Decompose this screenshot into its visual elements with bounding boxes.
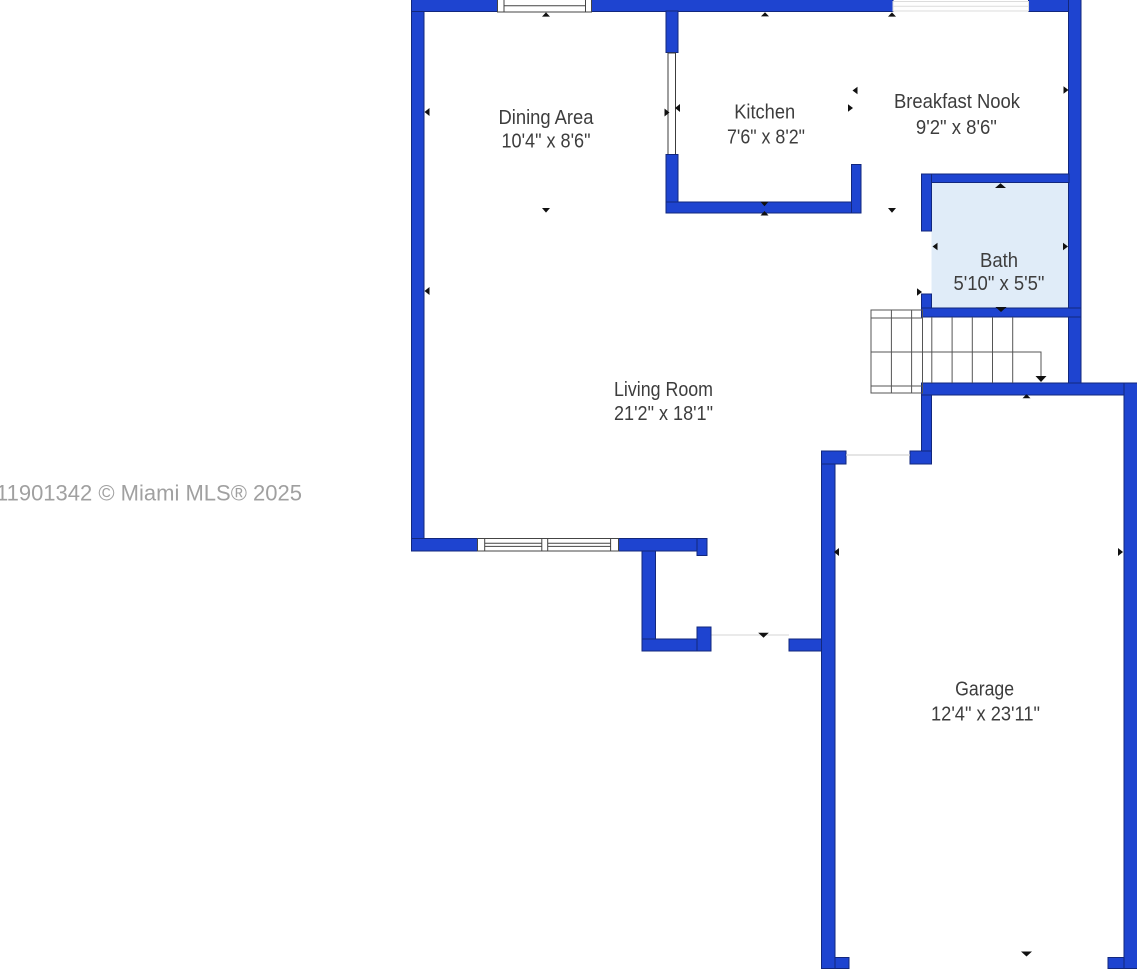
- svg-text:11901342 © Miami MLS® 2025: 11901342 © Miami MLS® 2025: [0, 481, 302, 506]
- svg-text:21'2" x 18'1": 21'2" x 18'1": [614, 403, 713, 425]
- svg-text:12'4" x 23'11": 12'4" x 23'11": [931, 704, 1040, 726]
- svg-text:Bath: Bath: [980, 250, 1018, 272]
- svg-text:Garage: Garage: [955, 679, 1014, 701]
- svg-text:Dining Area: Dining Area: [499, 107, 595, 129]
- svg-text:10'4" x 8'6": 10'4" x 8'6": [502, 130, 591, 152]
- svg-text:Breakfast Nook: Breakfast Nook: [894, 91, 1021, 113]
- svg-text:9'2" x 8'6": 9'2" x 8'6": [916, 117, 997, 139]
- svg-text:7'6" x 8'2": 7'6" x 8'2": [727, 127, 805, 149]
- svg-text:Living Room: Living Room: [614, 379, 713, 401]
- svg-text:5'10" x 5'5": 5'10" x 5'5": [954, 273, 1045, 295]
- svg-text:Kitchen: Kitchen: [734, 101, 795, 123]
